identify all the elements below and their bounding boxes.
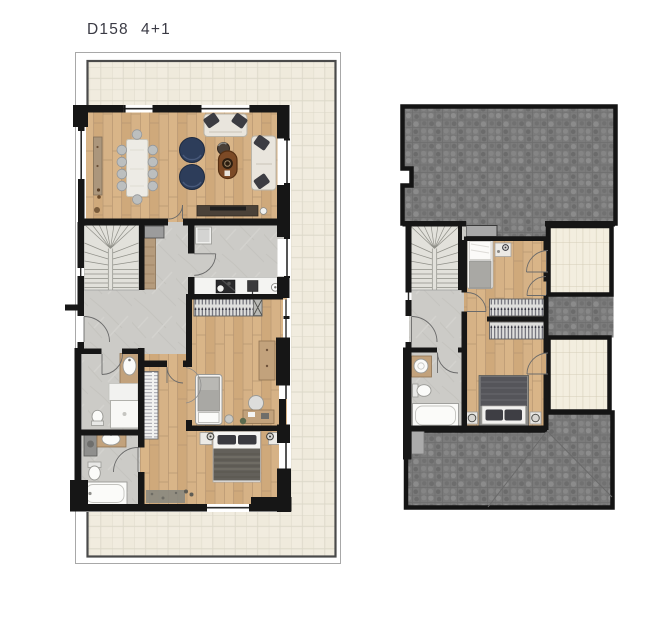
svg-text:4+1: 4+1 (141, 21, 171, 38)
svg-text:D158: D158 (87, 21, 129, 38)
